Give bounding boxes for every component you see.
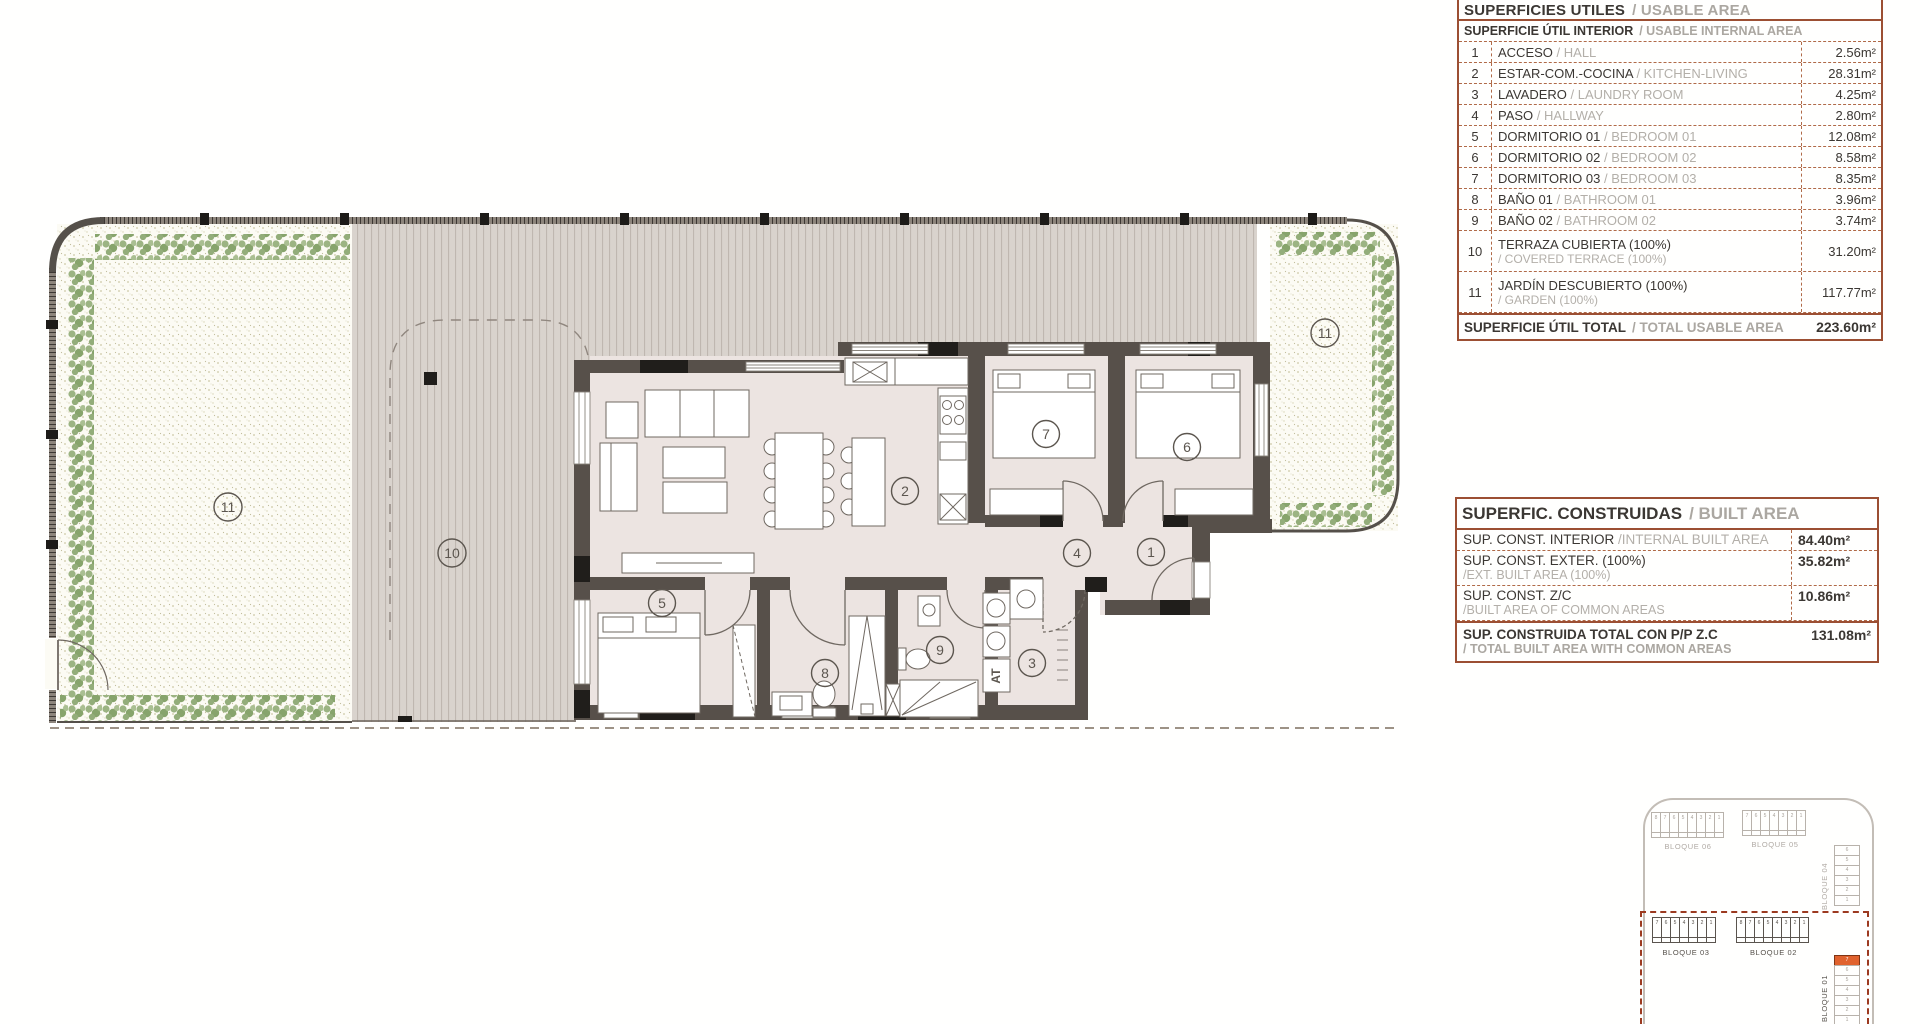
row-number: 8 xyxy=(1459,189,1492,209)
unit-cell: 6 xyxy=(1834,845,1860,856)
unit-cell: 5 xyxy=(1678,812,1688,838)
unit-cell: 4 xyxy=(1772,917,1782,943)
row-name: BAÑO 01 / BATHROOM 01 xyxy=(1492,189,1801,209)
unit-cell: 1 xyxy=(1799,917,1809,943)
total-es: SUPERFICIE ÚTIL TOTAL xyxy=(1464,320,1626,335)
total-es: SUP. CONSTRUIDA TOTAL CON P/P Z.C xyxy=(1463,627,1718,642)
room-number-1: 1 xyxy=(1147,544,1155,560)
bloque-02-units: 87654321 xyxy=(1737,917,1809,943)
room-number-9: 9 xyxy=(936,642,944,658)
table-row: 3 LAVADERO / LAUNDRY ROOM 4.25m² xyxy=(1459,84,1881,105)
unit-cell: 3 xyxy=(1781,917,1791,943)
row-name: DORMITORIO 03 / BEDROOM 03 xyxy=(1492,168,1801,188)
row-name: DORMITORIO 01 / BEDROOM 01 xyxy=(1492,126,1801,146)
bloque-04-label: BLOQUE 04 xyxy=(1820,848,1829,910)
row-name: SUP. CONST. Z/C /BUILT AREA OF COMMON AR… xyxy=(1457,586,1791,620)
row-number: 5 xyxy=(1459,126,1492,146)
row-name: ACCESO / HALL xyxy=(1492,42,1801,62)
row-name: JARDÍN DESCUBIERTO (100%) / GARDEN (100%… xyxy=(1492,272,1801,312)
unit-cell: 2 xyxy=(1834,885,1860,896)
built-area-table: SUPERFIC. CONSTRUIDAS / BUILT AREA SUP. … xyxy=(1455,497,1879,663)
row-value: 4.25m² xyxy=(1801,84,1881,104)
bloque-01-label: BLOQUE 01 xyxy=(1820,960,1829,1022)
floorplan-page: { "colors": { "table_border": "#9C4F33",… xyxy=(0,0,1920,1024)
unit-cell: 4 xyxy=(1834,985,1860,996)
unit-cell: 1 xyxy=(1834,895,1860,906)
table-row: 11 JARDÍN DESCUBIERTO (100%) / GARDEN (1… xyxy=(1459,272,1881,313)
row-number: 11 xyxy=(1459,272,1492,312)
row-value: 117.77m² xyxy=(1801,272,1881,312)
bloque-05-units: 7654321 xyxy=(1743,810,1806,836)
row-name: ESTAR-COM.-COCINA / KITCHEN-LIVING xyxy=(1492,63,1801,83)
unit-cell: 7 xyxy=(1745,917,1755,943)
table-row: 4 PASO / HALLWAY 2.80m² xyxy=(1459,105,1881,126)
unit-cell: 4 xyxy=(1769,810,1779,836)
row-name: TERRAZA CUBIERTA (100%) / COVERED TERRAC… xyxy=(1492,231,1801,271)
table-row: 9 BAÑO 02 / BATHROOM 02 3.74m² xyxy=(1459,210,1881,231)
usable-area-rows: 1 ACCESO / HALL 2.56m² 2 ESTAR-COM.-COCI… xyxy=(1459,42,1881,313)
table-row: 1 ACCESO / HALL 2.56m² xyxy=(1459,42,1881,63)
at-label: AT xyxy=(989,668,1003,684)
room-number-11b: 11 xyxy=(1318,325,1333,341)
built-area-title: SUPERFIC. CONSTRUIDAS / BUILT AREA xyxy=(1457,499,1877,530)
row-value: 8.35m² xyxy=(1801,168,1881,188)
unit-cell: 2 xyxy=(1787,810,1797,836)
room-number-7: 7 xyxy=(1042,426,1050,442)
unit-cell: 5 xyxy=(1760,810,1770,836)
row-name: BAÑO 02 / BATHROOM 02 xyxy=(1492,210,1801,230)
table-row: SUP. CONST. EXTER. (100%) /EXT. BUILT AR… xyxy=(1457,551,1877,586)
row-value: 35.82m² xyxy=(1791,551,1877,585)
row-name: DORMITORIO 02 / BEDROOM 02 xyxy=(1492,147,1801,167)
unit-cell: 4 xyxy=(1834,865,1860,876)
unit-cell: 4 xyxy=(1679,917,1689,943)
usable-area-total: SUPERFICIE ÚTIL TOTAL / TOTAL USABLE ARE… xyxy=(1459,313,1881,339)
terrace-column xyxy=(424,372,437,385)
table-row: 2 ESTAR-COM.-COCINA / KITCHEN-LIVING 28.… xyxy=(1459,63,1881,84)
total-value: 131.08m² xyxy=(1811,627,1871,656)
unit-cell: 5 xyxy=(1834,975,1860,986)
unit-cell: 3 xyxy=(1778,810,1788,836)
room-number-6: 6 xyxy=(1183,439,1191,455)
table-row: 8 BAÑO 01 / BATHROOM 01 3.96m² xyxy=(1459,189,1881,210)
room-number-5: 5 xyxy=(658,595,666,611)
bloque-03-units: 7654321 xyxy=(1653,917,1716,943)
unit-cell: 1 xyxy=(1796,810,1806,836)
unit-cell: 7 xyxy=(1834,955,1860,966)
title-es: SUPERFIC. CONSTRUIDAS xyxy=(1462,504,1682,524)
total-value: 223.60m² xyxy=(1816,319,1876,335)
unit-cell: 3 xyxy=(1834,875,1860,886)
unit-cell: 1 xyxy=(1714,812,1724,838)
unit-cell: 6 xyxy=(1834,965,1860,976)
row-number: 2 xyxy=(1459,63,1492,83)
row-name: PASO / HALLWAY xyxy=(1492,105,1801,125)
garden-left xyxy=(57,224,352,722)
row-name: SUP. CONST. EXTER. (100%) /EXT. BUILT AR… xyxy=(1457,551,1791,585)
bloque-03-label: BLOQUE 03 xyxy=(1653,948,1719,957)
apartment-floor-plan: 1 2 3 4 5 6 7 8 9 10 11 11 AT xyxy=(0,0,1450,1024)
shower xyxy=(849,616,885,716)
row-number: 10 xyxy=(1459,231,1492,271)
site-boundary xyxy=(1643,798,1874,1024)
bloque-05-label: BLOQUE 05 xyxy=(1741,840,1809,849)
unit-cell: 5 xyxy=(1670,917,1680,943)
row-value: 10.86m² xyxy=(1791,586,1877,620)
row-value: 12.08m² xyxy=(1801,126,1881,146)
unit-cell: 1 xyxy=(1706,917,1716,943)
room-number-8: 8 xyxy=(821,665,829,681)
bloque-04-units: 654321 xyxy=(1834,846,1860,906)
usable-area-table: SUPERFICIES UTILES / USABLE AREA SUPERFI… xyxy=(1457,0,1883,341)
row-value: 3.96m² xyxy=(1801,189,1881,209)
bloque-01-units: 7654321 xyxy=(1834,956,1860,1024)
built-area-rows: SUP. CONST. INTERIOR /INTERNAL BUILT ARE… xyxy=(1457,530,1877,621)
unit-cell: 6 xyxy=(1751,810,1761,836)
unit-cell: 2 xyxy=(1697,917,1707,943)
title-en: / USABLE AREA xyxy=(1632,2,1751,19)
dining-table xyxy=(764,433,834,529)
table-row: SUP. CONST. INTERIOR /INTERNAL BUILT ARE… xyxy=(1457,530,1877,551)
room-number-2: 2 xyxy=(901,483,909,499)
table-row: SUP. CONST. Z/C /BUILT AREA OF COMMON AR… xyxy=(1457,586,1877,621)
unit-cell: 8 xyxy=(1736,917,1746,943)
table-row: 10 TERRAZA CUBIERTA (100%) / COVERED TER… xyxy=(1459,231,1881,272)
row-value: 84.40m² xyxy=(1791,530,1877,550)
unit-cell: 6 xyxy=(1661,917,1671,943)
unit-cell: 6 xyxy=(1669,812,1679,838)
phase-dashed-boundary xyxy=(1640,911,1869,1024)
tv-sideboard xyxy=(622,553,754,573)
room-number-4: 4 xyxy=(1073,545,1081,561)
row-name: LAVADERO / LAUNDRY ROOM xyxy=(1492,84,1801,104)
unit-cell: 5 xyxy=(1834,855,1860,866)
row-number: 4 xyxy=(1459,105,1492,125)
unit-cell: 5 xyxy=(1763,917,1773,943)
row-number: 9 xyxy=(1459,210,1492,230)
room-number-3: 3 xyxy=(1028,655,1036,671)
usable-area-subtitle: SUPERFICIE ÚTIL INTERIOR / USABLE INTERN… xyxy=(1459,21,1881,42)
room-number-10: 10 xyxy=(444,545,460,561)
built-area-total: SUP. CONSTRUIDA TOTAL CON P/P Z.C / TOTA… xyxy=(1457,621,1877,661)
subtitle-es: SUPERFICIE ÚTIL INTERIOR xyxy=(1464,24,1633,38)
row-number: 3 xyxy=(1459,84,1492,104)
row-name: SUP. CONST. INTERIOR /INTERNAL BUILT ARE… xyxy=(1457,530,1791,550)
kitchen-island xyxy=(841,438,885,526)
row-value: 31.20m² xyxy=(1801,231,1881,271)
unit-cell: 7 xyxy=(1652,917,1662,943)
row-number: 1 xyxy=(1459,42,1492,62)
row-value: 3.74m² xyxy=(1801,210,1881,230)
unit-cell: 2 xyxy=(1705,812,1715,838)
total-en: / TOTAL BUILT AREA WITH COMMON AREAS xyxy=(1463,642,1805,656)
row-value: 8.58m² xyxy=(1801,147,1881,167)
table-row: 6 DORMITORIO 02 / BEDROOM 02 8.58m² xyxy=(1459,147,1881,168)
unit-cell: 2 xyxy=(1790,917,1800,943)
row-value: 2.56m² xyxy=(1801,42,1881,62)
usable-area-title: SUPERFICIES UTILES / USABLE AREA xyxy=(1459,0,1881,21)
unit-cell: 7 xyxy=(1660,812,1670,838)
unit-cell: 3 xyxy=(1696,812,1706,838)
title-es: SUPERFICIES UTILES xyxy=(1464,2,1625,19)
total-en: / TOTAL USABLE AREA xyxy=(1632,320,1784,335)
unit-cell: 2 xyxy=(1834,1005,1860,1016)
unit-cell: 8 xyxy=(1651,812,1661,838)
subtitle-en: / USABLE INTERNAL AREA xyxy=(1639,24,1802,38)
title-en: / BUILT AREA xyxy=(1689,504,1800,524)
unit-cell: 3 xyxy=(1688,917,1698,943)
table-row: 7 DORMITORIO 03 / BEDROOM 03 8.35m² xyxy=(1459,168,1881,189)
unit-cell: 7 xyxy=(1742,810,1752,836)
garden-right xyxy=(1270,224,1398,531)
unit-cell: 3 xyxy=(1834,995,1860,1006)
row-value: 28.31m² xyxy=(1801,63,1881,83)
unit-cell: 6 xyxy=(1754,917,1764,943)
table-row: 5 DORMITORIO 01 / BEDROOM 01 12.08m² xyxy=(1459,126,1881,147)
bloque-02-label: BLOQUE 02 xyxy=(1737,948,1810,957)
unit-cell: 1 xyxy=(1834,1015,1860,1024)
row-number: 7 xyxy=(1459,168,1492,188)
row-value: 2.80m² xyxy=(1801,105,1881,125)
row-number: 6 xyxy=(1459,147,1492,167)
bloque-06-label: BLOQUE 06 xyxy=(1650,842,1726,851)
unit-cell: 4 xyxy=(1687,812,1697,838)
bloque-06-units: 87654321 xyxy=(1652,812,1724,838)
room-number-11: 11 xyxy=(221,499,236,515)
